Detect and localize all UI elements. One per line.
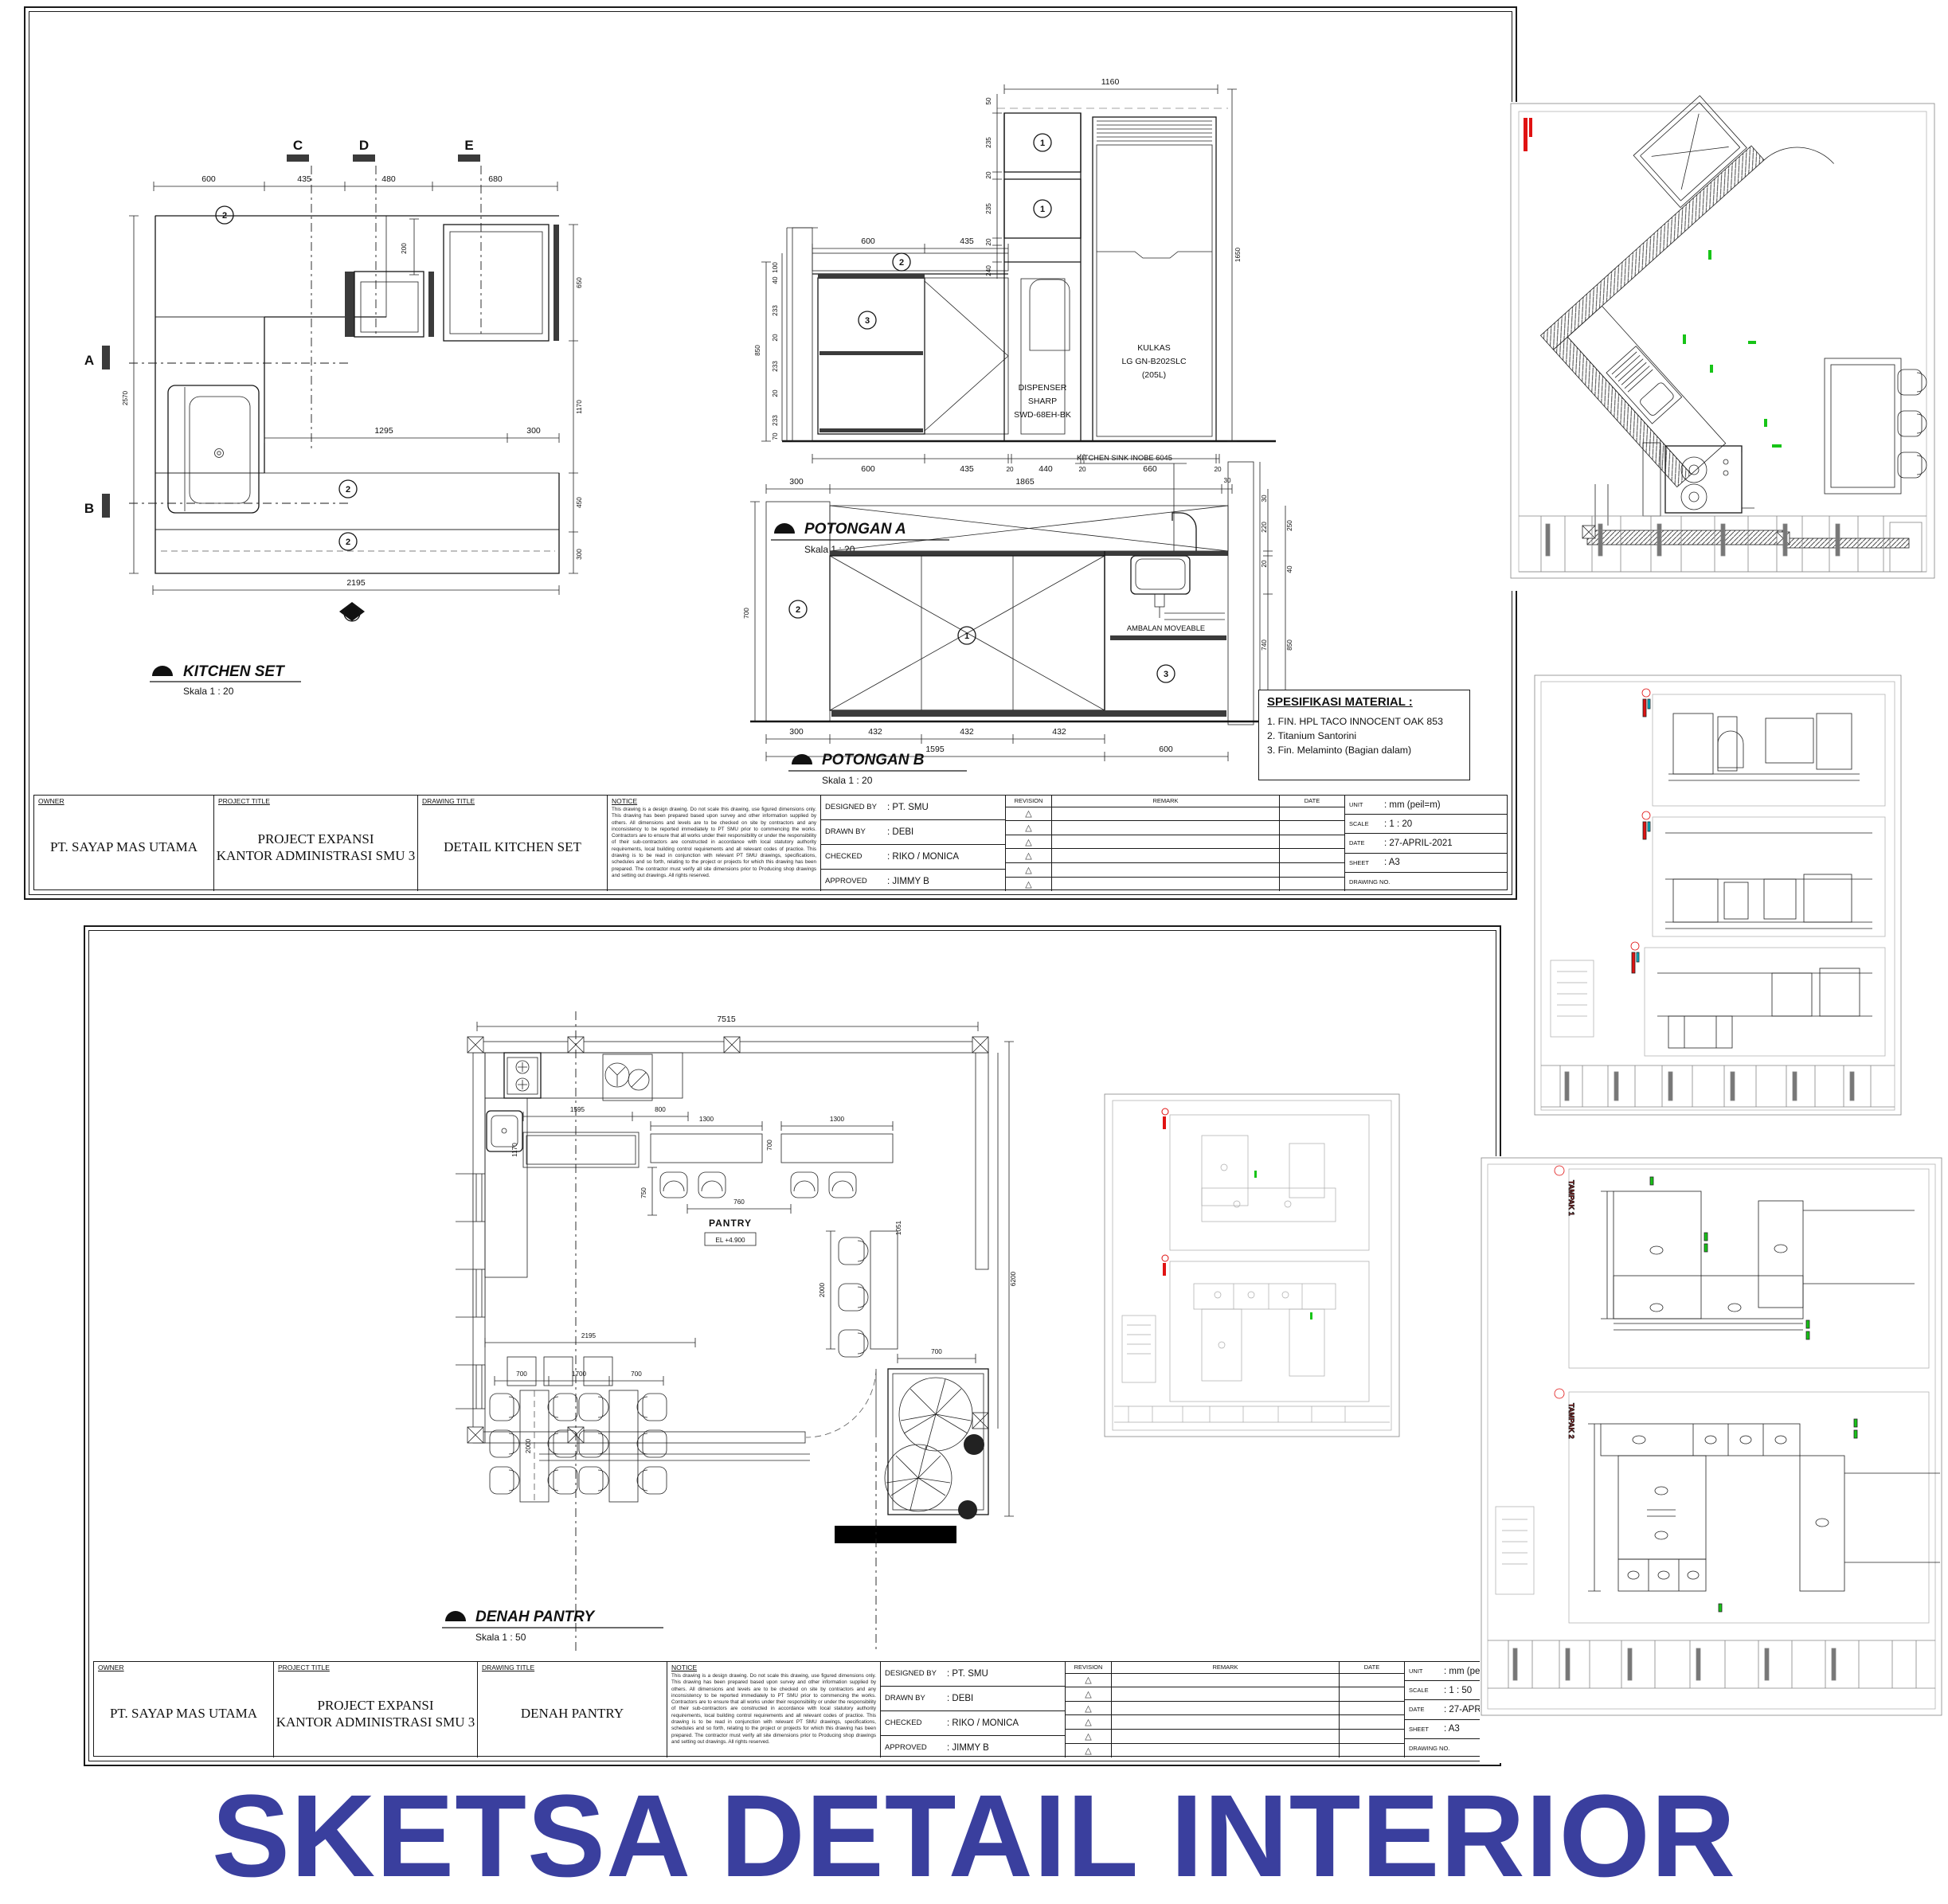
svg-text:235: 235 bbox=[985, 137, 992, 148]
owner-cell: OWNER PT. SAYAP MAS UTAMA bbox=[94, 1662, 274, 1757]
dim: 1700 bbox=[572, 1370, 587, 1378]
svg-text:233: 233 bbox=[772, 361, 779, 372]
svg-text:40: 40 bbox=[772, 276, 779, 284]
svg-text:220: 220 bbox=[1261, 522, 1268, 533]
svg-text:600: 600 bbox=[1159, 745, 1173, 754]
drawing-title-value: DETAIL KITCHEN SET bbox=[444, 839, 581, 855]
svg-text:70: 70 bbox=[772, 432, 779, 440]
ambalan-label: AMBALAN MOVEABLE bbox=[1127, 624, 1205, 632]
unit-label: UNIT bbox=[1409, 1667, 1444, 1675]
revision-triangle-icon: △ bbox=[1085, 1746, 1091, 1756]
sheet1-drawings: 600 435 480 680 200 C D E A B 2570 650 1… bbox=[33, 16, 1508, 790]
kitchen-set-title: KITCHEN SET Skala 1 : 20 bbox=[150, 663, 301, 697]
revision-triangle-icon: △ bbox=[1085, 1675, 1091, 1685]
svg-text:1595: 1595 bbox=[925, 745, 945, 754]
svg-text:F: F bbox=[349, 608, 355, 620]
project-title-label: PROJECT TITLE bbox=[278, 1664, 473, 1671]
dim: 1300 bbox=[830, 1116, 845, 1123]
info-column: UNIT: mm (peil=m) SCALE: 1 : 20 DATE: 27… bbox=[1345, 796, 1507, 891]
svg-text:233: 233 bbox=[772, 305, 779, 316]
section-marker-d: D bbox=[359, 138, 369, 153]
material-key-2: 2 bbox=[339, 480, 357, 498]
dim: 700 bbox=[931, 1348, 942, 1355]
unit-label: UNIT bbox=[1349, 801, 1384, 808]
owner-value: PT. SAYAP MAS UTAMA bbox=[50, 839, 198, 855]
svg-text:SWD-68EH-BK: SWD-68EH-BK bbox=[1014, 410, 1071, 420]
titleblock-sheet2: OWNER PT. SAYAP MAS UTAMA PROJECT TITLE … bbox=[93, 1661, 1492, 1757]
svg-text:20: 20 bbox=[1214, 466, 1222, 473]
drawing-title-cell: DRAWING TITLE DENAH PANTRY bbox=[478, 1662, 667, 1757]
floor-mat bbox=[584, 1357, 612, 1386]
panel-elevations-mid bbox=[1533, 674, 1903, 1118]
dim: 2570 bbox=[122, 390, 129, 405]
material-key-3: 3 bbox=[859, 311, 876, 329]
panel-rotated-plan bbox=[1509, 102, 1938, 591]
section-dot-icon bbox=[152, 666, 173, 676]
dim: 750 bbox=[640, 1187, 647, 1198]
material-key-2: 2 bbox=[216, 206, 233, 224]
kitchen-set-plan: 600 435 480 680 200 C D E A B 2570 650 1… bbox=[84, 138, 583, 697]
dim: 1650 bbox=[1234, 247, 1242, 262]
svg-text:POTONGAN A: POTONGAN A bbox=[804, 521, 906, 538]
section-marker-c: C bbox=[293, 138, 303, 153]
svg-text:1: 1 bbox=[964, 631, 969, 641]
svg-text:20: 20 bbox=[772, 389, 779, 397]
designed-by-label: DESIGNED BY bbox=[885, 1669, 947, 1678]
section-marker-e: E bbox=[464, 138, 473, 153]
drawn-by-label: DRAWN BY bbox=[885, 1694, 947, 1703]
project-line2: KANTOR ADMINISTRASI SMU 3 bbox=[217, 847, 416, 864]
shrub-icon bbox=[964, 1434, 984, 1455]
rotated-kitchen-walls bbox=[1492, 60, 1924, 487]
scale-label: SCALE bbox=[1349, 820, 1384, 827]
svg-text:2: 2 bbox=[899, 258, 904, 268]
signatures-cell: DESIGNED BY: PT. SMU DRAWN BY: DEBI CHEC… bbox=[821, 796, 1006, 891]
bar-tables: 1300 700 1300 760 1051 bbox=[651, 1116, 902, 1235]
revision-header: REVISION bbox=[1066, 1662, 1111, 1674]
sheet-label: SHEET bbox=[1409, 1726, 1444, 1733]
spec-note-box bbox=[1551, 960, 1594, 1037]
svg-text:KULKAS: KULKAS bbox=[1137, 343, 1170, 353]
dim: 1051 bbox=[895, 1220, 902, 1235]
owner-label: OWNER bbox=[38, 797, 209, 805]
material-key-3: 3 bbox=[1157, 665, 1175, 682]
svg-text:440: 440 bbox=[1039, 464, 1053, 474]
checked-label: CHECKED bbox=[825, 852, 887, 861]
dim: 1160 bbox=[1101, 77, 1120, 87]
svg-text:DISPENSER: DISPENSER bbox=[1019, 383, 1067, 393]
drawn-by-label: DRAWN BY bbox=[825, 827, 887, 836]
revision-triangle-icon: △ bbox=[1025, 808, 1031, 819]
sink-callout: KITCHEN SINK INOBE 6045 bbox=[1077, 454, 1172, 462]
dining-set bbox=[1825, 358, 1926, 494]
room-label: PANTRY bbox=[709, 1218, 752, 1229]
svg-text:600: 600 bbox=[861, 464, 875, 474]
svg-text:20: 20 bbox=[1078, 466, 1086, 473]
designed-by-value: : PT. SMU bbox=[887, 803, 929, 812]
revision-triangle-icon: △ bbox=[1085, 1717, 1091, 1727]
date-header: DATE bbox=[1280, 796, 1344, 807]
svg-text:30: 30 bbox=[1261, 495, 1268, 502]
potongan-a-title: POTONGAN A Skala 1 : 20 bbox=[771, 521, 949, 555]
unit-value: : mm (peil=m) bbox=[1384, 800, 1441, 810]
revision-triangle-icon: △ bbox=[1025, 823, 1031, 833]
svg-text:3: 3 bbox=[865, 316, 870, 326]
dim: 680 bbox=[488, 174, 503, 184]
red-annotation bbox=[1524, 118, 1527, 151]
tampak-2-label: TAMPAK 2 bbox=[1567, 1403, 1575, 1439]
spesifikasi-item: 3. Fin. Melaminto (Bagian dalam) bbox=[1267, 744, 1461, 758]
remark-header: REMARK bbox=[1112, 1662, 1339, 1674]
revision-triangle-icon: △ bbox=[1025, 865, 1031, 875]
svg-text:(205L): (205L) bbox=[1142, 370, 1166, 380]
revision-header: REVISION bbox=[1006, 796, 1051, 807]
svg-text:250: 250 bbox=[1286, 520, 1293, 531]
kitchen-counter bbox=[485, 1053, 683, 1277]
section-marker-b: B bbox=[84, 501, 94, 516]
material-key-1: 1 bbox=[1034, 134, 1051, 151]
dim: 1595 bbox=[570, 1106, 585, 1113]
owner-cell: OWNER PT. SAYAP MAS UTAMA bbox=[34, 796, 214, 891]
checked-value: : RIKO / MONICA bbox=[947, 1718, 1019, 1728]
drawing-title-value: DENAH PANTRY bbox=[521, 1705, 624, 1722]
tampak-1-label: TAMPAK 1 bbox=[1567, 1180, 1575, 1216]
svg-text:233: 233 bbox=[772, 415, 779, 426]
svg-text:850: 850 bbox=[1286, 639, 1293, 651]
dim: 700 bbox=[743, 608, 750, 619]
drawing-no-label: DRAWING NO. bbox=[1409, 1745, 1449, 1752]
svg-text:2: 2 bbox=[222, 211, 227, 221]
notice-cell: NOTICE This drawing is a design drawing.… bbox=[667, 1662, 881, 1757]
left-windows bbox=[456, 1174, 485, 1409]
svg-text:KITCHEN SET: KITCHEN SET bbox=[183, 663, 285, 680]
sheet-label: SHEET bbox=[1349, 859, 1384, 866]
revision-triangle-icon: △ bbox=[1085, 1703, 1091, 1714]
titleblock-strip bbox=[1541, 1065, 1895, 1107]
svg-text:2: 2 bbox=[796, 605, 800, 615]
dim: 435 bbox=[297, 174, 311, 184]
spesifikasi-material-box: SPESIFIKASI MATERIAL : 1. FIN. HPL TACO … bbox=[1258, 690, 1470, 780]
spec-note-box bbox=[1496, 1507, 1534, 1594]
svg-text:235: 235 bbox=[985, 203, 992, 214]
svg-text:20: 20 bbox=[985, 238, 992, 246]
approved-label: APPROVED bbox=[825, 877, 887, 886]
svg-text:2: 2 bbox=[346, 485, 350, 495]
svg-text:40: 40 bbox=[1286, 565, 1293, 573]
denah-pantry-title: DENAH PANTRY Skala 1 : 50 bbox=[442, 1609, 663, 1643]
designed-by-label: DESIGNED BY bbox=[825, 803, 887, 811]
dim: 300 bbox=[789, 477, 804, 487]
signatures-cell: DESIGNED BY: PT. SMU DRAWN BY: DEBI CHEC… bbox=[881, 1662, 1066, 1757]
highlight-strip bbox=[835, 1526, 956, 1543]
red-annotation bbox=[1529, 118, 1532, 137]
drawn-by-value: : DEBI bbox=[947, 1694, 973, 1703]
sheet-value: : A3 bbox=[1444, 1724, 1460, 1734]
owner-label: OWNER bbox=[98, 1664, 269, 1671]
pantry-plan: 1595 800 1170 750 2195 bbox=[442, 1011, 1017, 1652]
panel-elevations-bottom: TAMPAK 1 TAMPAK 2 bbox=[1480, 1156, 1946, 1763]
dim: 435 bbox=[960, 237, 974, 246]
svg-text:435: 435 bbox=[960, 464, 974, 474]
svg-text:Skala 1 : 20: Skala 1 : 20 bbox=[183, 686, 234, 697]
drawn-by-value: : DEBI bbox=[887, 827, 913, 837]
svg-text:432: 432 bbox=[1052, 727, 1066, 737]
remark-column: REMARK bbox=[1052, 796, 1280, 891]
remark-header: REMARK bbox=[1052, 796, 1279, 807]
dim: 300 bbox=[576, 549, 583, 560]
dim: 2195 bbox=[346, 578, 366, 588]
notice-cell: NOTICE This drawing is a design drawing.… bbox=[608, 796, 821, 891]
svg-text:50: 50 bbox=[985, 97, 992, 105]
revision-triangle-icon: △ bbox=[1085, 1731, 1091, 1742]
elevation-frame-3 bbox=[1631, 942, 1885, 1056]
checked-value: : RIKO / MONICA bbox=[887, 852, 959, 862]
material-key-1: 1 bbox=[1034, 200, 1051, 217]
potongan-b-title: POTONGAN B Skala 1 : 20 bbox=[788, 752, 967, 786]
sheet-value: : A3 bbox=[1384, 858, 1400, 867]
svg-text:20: 20 bbox=[1261, 560, 1268, 568]
dispenser-label: DISPENSER SHARP SWD-68EH-BK bbox=[1014, 383, 1071, 420]
drawing-title-cell: DRAWING TITLE DETAIL KITCHEN SET bbox=[418, 796, 608, 891]
project-line1: PROJECT EXPANSI bbox=[318, 1697, 434, 1714]
svg-text:300: 300 bbox=[789, 727, 804, 737]
dim: 6200 bbox=[1010, 1271, 1017, 1286]
bench-seating: 2000 700 bbox=[819, 1231, 976, 1363]
dim: 30 bbox=[1223, 477, 1231, 484]
date-column: DATE bbox=[1280, 796, 1345, 891]
svg-text:20: 20 bbox=[985, 171, 992, 179]
dim: 2195 bbox=[581, 1332, 597, 1339]
svg-text:Skala 1 : 20: Skala 1 : 20 bbox=[822, 775, 873, 786]
tampak-2-drawing: TAMPAK 2 bbox=[1555, 1389, 1940, 1623]
svg-text:240: 240 bbox=[985, 265, 992, 276]
dim: 1170 bbox=[576, 400, 583, 414]
drawing-no-label: DRAWING NO. bbox=[1349, 878, 1390, 886]
notice-text: This drawing is a design drawing. Do not… bbox=[671, 1671, 876, 1746]
scale-value: : 1 : 50 bbox=[1444, 1686, 1472, 1695]
notice-label: NOTICE bbox=[612, 797, 816, 805]
svg-text:740: 740 bbox=[1261, 639, 1268, 651]
material-key-2: 2 bbox=[893, 253, 910, 271]
dim: 1865 bbox=[1015, 477, 1035, 487]
designed-by-value: : PT. SMU bbox=[947, 1669, 988, 1679]
dim: 650 bbox=[576, 277, 583, 288]
dim: 600 bbox=[201, 174, 216, 184]
revision-column: REVISION △ △ △ △ △ △ bbox=[1006, 796, 1052, 891]
elevation-frame-1 bbox=[1642, 689, 1885, 806]
drawing-title-label: DRAWING TITLE bbox=[482, 1664, 663, 1671]
elevation-frame-2 bbox=[1642, 811, 1885, 936]
svg-text:3: 3 bbox=[1164, 670, 1168, 679]
material-key-2: 2 bbox=[339, 533, 357, 550]
approved-label: APPROVED bbox=[885, 1743, 947, 1752]
dim: 700 bbox=[631, 1370, 642, 1378]
svg-text:SHARP: SHARP bbox=[1028, 397, 1057, 406]
date-value: : 27-APRIL-2021 bbox=[1384, 839, 1453, 848]
dim: 7515 bbox=[717, 1015, 736, 1024]
notice-label: NOTICE bbox=[671, 1664, 876, 1671]
green-annotations bbox=[1683, 250, 1782, 448]
titleblock-strip bbox=[1488, 1640, 1935, 1688]
notice-text: This drawing is a design drawing. Do not… bbox=[612, 805, 816, 879]
revision-triangle-icon: △ bbox=[1025, 850, 1031, 861]
sheet-denah-pantry: 7515 bbox=[84, 925, 1501, 1766]
dim: 700 bbox=[766, 1140, 773, 1151]
project-line1: PROJECT EXPANSI bbox=[258, 831, 374, 847]
svg-text:432: 432 bbox=[960, 727, 974, 737]
dim: 200 bbox=[401, 243, 408, 254]
dim: 1300 bbox=[699, 1116, 714, 1123]
dim: 2000 bbox=[525, 1438, 532, 1453]
svg-text:20: 20 bbox=[1006, 466, 1014, 473]
scale-value: : 1 : 20 bbox=[1384, 819, 1412, 829]
project-line2: KANTOR ADMINISTRASI SMU 3 bbox=[276, 1714, 475, 1730]
date-column: DATE bbox=[1340, 1662, 1405, 1757]
dim: 600 bbox=[861, 237, 875, 246]
svg-text:660: 660 bbox=[1143, 464, 1157, 474]
info-column: UNIT: mm (peil=m) SCALE: 1 : 50 DATE: 27… bbox=[1405, 1662, 1491, 1757]
date-label: DATE bbox=[1409, 1706, 1444, 1713]
svg-text:LG GN-B202SLC: LG GN-B202SLC bbox=[1121, 357, 1187, 366]
tree-icon bbox=[899, 1378, 972, 1451]
dim: 480 bbox=[381, 174, 396, 184]
svg-text:20: 20 bbox=[772, 334, 779, 342]
revision-triangle-icon: △ bbox=[1025, 879, 1031, 889]
project-title-label: PROJECT TITLE bbox=[218, 797, 413, 805]
left-dims: 850 100 40 233 20 233 20 233 70 bbox=[754, 253, 782, 441]
project-title-cell: PROJECT TITLE PROJECT EXPANSIKANTOR ADMI… bbox=[214, 796, 418, 891]
dim: 2000 bbox=[819, 1282, 826, 1297]
remark-column: REMARK bbox=[1112, 1662, 1340, 1757]
svg-text:100: 100 bbox=[772, 262, 779, 273]
spesifikasi-item: 2. Titanium Santorini bbox=[1267, 729, 1461, 744]
checked-label: CHECKED bbox=[885, 1718, 947, 1727]
dim: 760 bbox=[733, 1198, 745, 1206]
right-dims: 30 220 20 740 50 250 40 850 bbox=[1261, 489, 1293, 721]
spesifikasi-title: SPESIFIKASI MATERIAL : bbox=[1267, 695, 1461, 709]
material-key-1: 1 bbox=[958, 627, 976, 644]
section-marker-a: A bbox=[84, 353, 94, 368]
approved-value: : JIMMY B bbox=[947, 1743, 989, 1753]
svg-text:850: 850 bbox=[754, 345, 761, 356]
planter bbox=[885, 1369, 988, 1519]
section-marker-f: F bbox=[339, 602, 365, 621]
material-key-2: 2 bbox=[789, 600, 807, 618]
svg-text:1: 1 bbox=[1040, 139, 1045, 148]
shrub-icon bbox=[958, 1500, 977, 1519]
svg-text:1: 1 bbox=[1040, 205, 1045, 214]
revision-triangle-icon: △ bbox=[1025, 837, 1031, 847]
svg-text:Skala 1 : 50: Skala 1 : 50 bbox=[475, 1632, 526, 1643]
titleblock-sheet1: OWNER PT. SAYAP MAS UTAMA PROJECT TITLE … bbox=[33, 795, 1508, 890]
dim: 700 bbox=[516, 1370, 527, 1378]
potongan-b-drawing: KITCHEN SINK INOBE 6045 300 1865 30 2 70… bbox=[743, 454, 1300, 786]
tampak-1-drawing: TAMPAK 1 bbox=[1555, 1166, 1929, 1368]
tree-icon bbox=[885, 1445, 952, 1511]
dim: 300 bbox=[526, 426, 541, 436]
dim: 1170 bbox=[511, 1143, 518, 1157]
revision-column: REVISION △ △ △ △ △ △ bbox=[1066, 1662, 1112, 1757]
inset-mini-sheet bbox=[1105, 1094, 1399, 1437]
dim: 450 bbox=[576, 497, 583, 508]
dim: 800 bbox=[655, 1106, 666, 1113]
svg-text:432: 432 bbox=[868, 727, 882, 737]
svg-text:POTONGAN B: POTONGAN B bbox=[822, 752, 925, 768]
page-title: SKETSA DETAIL INTERIOR bbox=[0, 1769, 1948, 1904]
owner-value: PT. SAYAP MAS UTAMA bbox=[110, 1705, 257, 1722]
project-title-cell: PROJECT TITLE PROJECT EXPANSIKANTOR ADMI… bbox=[274, 1662, 478, 1757]
sheet2-drawings: 7515 bbox=[93, 935, 1492, 1656]
sheet-detail-kitchen-set: 600 435 480 680 200 C D E A B 2570 650 1… bbox=[24, 6, 1517, 900]
date-header: DATE bbox=[1340, 1662, 1404, 1674]
scale-label: SCALE bbox=[1409, 1687, 1444, 1694]
floor-mat bbox=[544, 1357, 573, 1386]
drawing-title-label: DRAWING TITLE bbox=[422, 797, 603, 805]
spesifikasi-item: 1. FIN. HPL TACO INNOCENT OAK 853 bbox=[1267, 715, 1461, 729]
date-label: DATE bbox=[1349, 839, 1384, 846]
approved-value: : JIMMY B bbox=[887, 877, 929, 886]
wall-unit-dims: 50 235 20 235 20 240 bbox=[985, 94, 1002, 279]
kulkas-label: KULKAS LG GN-B202SLC (205L) bbox=[1121, 343, 1187, 380]
svg-text:DENAH PANTRY: DENAH PANTRY bbox=[475, 1609, 597, 1625]
svg-text:2: 2 bbox=[346, 538, 350, 547]
revision-triangle-icon: △ bbox=[1085, 1689, 1091, 1699]
dim: 1295 bbox=[374, 426, 393, 436]
room-level: EL +4.900 bbox=[715, 1237, 745, 1244]
